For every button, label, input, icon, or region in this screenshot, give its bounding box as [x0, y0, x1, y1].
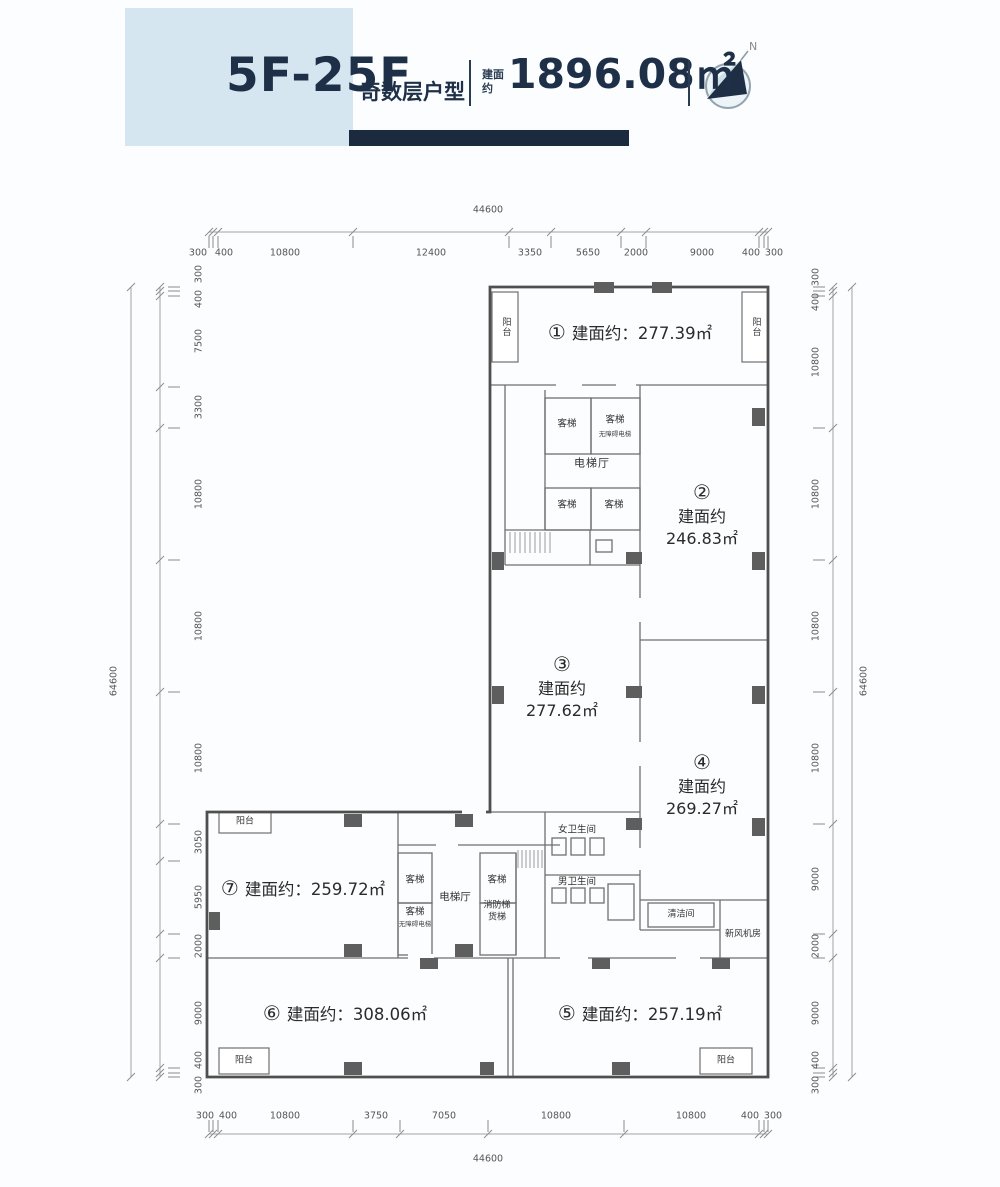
freight-lift-label: 货梯 — [488, 914, 506, 923]
dim-top-segment-0: 300 — [189, 248, 207, 258]
header-divider — [469, 60, 471, 106]
dim-top-segment-3: 12400 — [416, 248, 446, 258]
dim-left-segment-1: 400 — [194, 290, 204, 308]
passenger-lift-label: 客梯 — [557, 500, 576, 510]
dim-left-segment-6: 10800 — [194, 743, 204, 773]
dimension-ticks — [127, 228, 856, 1138]
unit-1-number: ① — [548, 320, 566, 344]
dim-left-segment-0: 300 — [194, 265, 204, 283]
dim-bottom-segment-1: 400 — [219, 1111, 237, 1121]
unit-2-number: ② — [666, 478, 738, 506]
balcony-label: 阳台 — [717, 1057, 735, 1066]
floor-plan-canvas — [0, 0, 1000, 1187]
dim-top-segment-4: 3350 — [518, 248, 542, 258]
dim-bottom-segment-8: 300 — [764, 1111, 782, 1121]
dim-left-segment-2: 7500 — [194, 329, 204, 353]
unit-7-label: ⑦ 建面约：259.72㎡ — [221, 876, 385, 900]
unit-4-label: ④ 建面约 269.27㎡ — [666, 748, 738, 821]
unit-6-label: ⑥ 建面约：308.06㎡ — [263, 1001, 427, 1025]
unit-2-label: ② 建面约 246.83㎡ — [666, 478, 738, 551]
balcony-label: 阳台 — [236, 818, 254, 827]
dim-bottom-segment-2: 10800 — [270, 1111, 300, 1121]
dim-bottom-segment-5: 10800 — [541, 1111, 571, 1121]
passenger-lift-label: 客梯 — [487, 875, 506, 885]
dim-bottom-total: 44600 — [473, 1154, 503, 1164]
balcony-label: 阳台 — [751, 317, 760, 337]
dim-right-segment-0: 300 — [811, 268, 821, 286]
unit-1-label: ① 建面约：277.39㎡ — [548, 320, 712, 344]
cleaning-room-label: 清洁间 — [667, 911, 694, 920]
dim-right-segment-4: 10800 — [811, 611, 821, 641]
dim-bottom-segment-3: 3750 — [364, 1111, 388, 1121]
unit-5-number: ⑤ — [558, 1001, 576, 1025]
unit-3-label: ③ 建面约 277.62㎡ — [526, 650, 598, 723]
dim-bottom-segment-0: 300 — [196, 1111, 214, 1121]
unit-3-number: ③ — [526, 650, 598, 678]
dim-top-total: 44600 — [473, 205, 503, 215]
dim-left-segment-11: 400 — [194, 1051, 204, 1069]
dim-left-total: 64600 — [109, 666, 119, 696]
mens-wc-label: 男卫生间 — [558, 877, 596, 887]
page-subtitle: 奇数层户型 — [360, 82, 465, 103]
dim-top-segment-9: 300 — [765, 248, 783, 258]
dim-left-segment-10: 9000 — [194, 1001, 204, 1025]
dim-left-segment-5: 10800 — [194, 611, 204, 641]
fire-lift-label: 消防梯 — [483, 902, 510, 911]
passenger-lift-label: 客梯 — [604, 500, 623, 510]
dim-top-segment-5: 5650 — [576, 248, 600, 258]
total-area: 1896.08㎡ — [508, 54, 736, 95]
area-prefix: 建面约 — [482, 68, 506, 97]
dim-right-segment-3: 10800 — [811, 479, 821, 509]
dim-right-total: 64600 — [859, 666, 869, 696]
header-divider — [688, 60, 690, 106]
dim-right-segment-1: 400 — [811, 293, 821, 311]
barrier-free-lift-label: 无障碍电梯 — [599, 431, 632, 438]
dim-right-segment-6: 9000 — [811, 867, 821, 891]
dim-bottom-segment-7: 400 — [741, 1111, 759, 1121]
dimension-lines — [131, 232, 852, 1134]
lift-lobby-label: 电梯厅 — [439, 892, 471, 903]
passenger-lift-label: 客梯 — [557, 419, 576, 429]
dim-top-segment-1: 400 — [215, 248, 233, 258]
dim-top-segment-7: 9000 — [690, 248, 714, 258]
compass-north-label: N — [749, 40, 757, 53]
dim-top-segment-8: 400 — [742, 248, 760, 258]
dim-right-segment-9: 400 — [811, 1051, 821, 1069]
dim-right-segment-8: 9000 — [811, 1001, 821, 1025]
dim-top-segment-2: 10800 — [270, 248, 300, 258]
passenger-lift-label: 客梯 — [605, 415, 624, 425]
dim-left-segment-7: 3050 — [194, 830, 204, 854]
dim-left-segment-3: 3300 — [194, 395, 204, 419]
dim-left-segment-12: 300 — [194, 1076, 204, 1094]
unit-6-number: ⑥ — [263, 1001, 281, 1025]
dim-right-segment-7: 2000 — [811, 934, 821, 958]
dim-right-segment-2: 10800 — [811, 347, 821, 377]
balcony-label: 阳台 — [235, 1057, 253, 1066]
balcony-label: 阳台 — [501, 317, 510, 337]
fresh-air-room-label: 新风机房 — [725, 931, 761, 940]
dim-bottom-segment-4: 7050 — [432, 1111, 456, 1121]
womens-wc-label: 女卫生间 — [558, 825, 596, 835]
lift-lobby-label: 电梯厅 — [574, 458, 610, 469]
dim-left-segment-8: 5950 — [194, 885, 204, 909]
passenger-lift-label: 客梯 — [405, 875, 424, 885]
barrier-free-lift-label: 无障碍电梯 — [399, 921, 432, 928]
dim-bottom-segment-6: 10800 — [676, 1111, 706, 1121]
dim-top-segment-6: 2000 — [624, 248, 648, 258]
unit-7-number: ⑦ — [221, 876, 239, 900]
dim-right-segment-10: 300 — [811, 1076, 821, 1094]
unit-4-number: ④ — [666, 748, 738, 776]
dim-left-segment-4: 10800 — [194, 479, 204, 509]
title-accent-bar — [349, 130, 629, 146]
unit-5-label: ⑤ 建面约：257.19㎡ — [558, 1001, 722, 1025]
passenger-lift-label: 客梯 — [405, 907, 424, 917]
dim-right-segment-5: 10800 — [811, 743, 821, 773]
dim-left-segment-9: 2000 — [194, 934, 204, 958]
